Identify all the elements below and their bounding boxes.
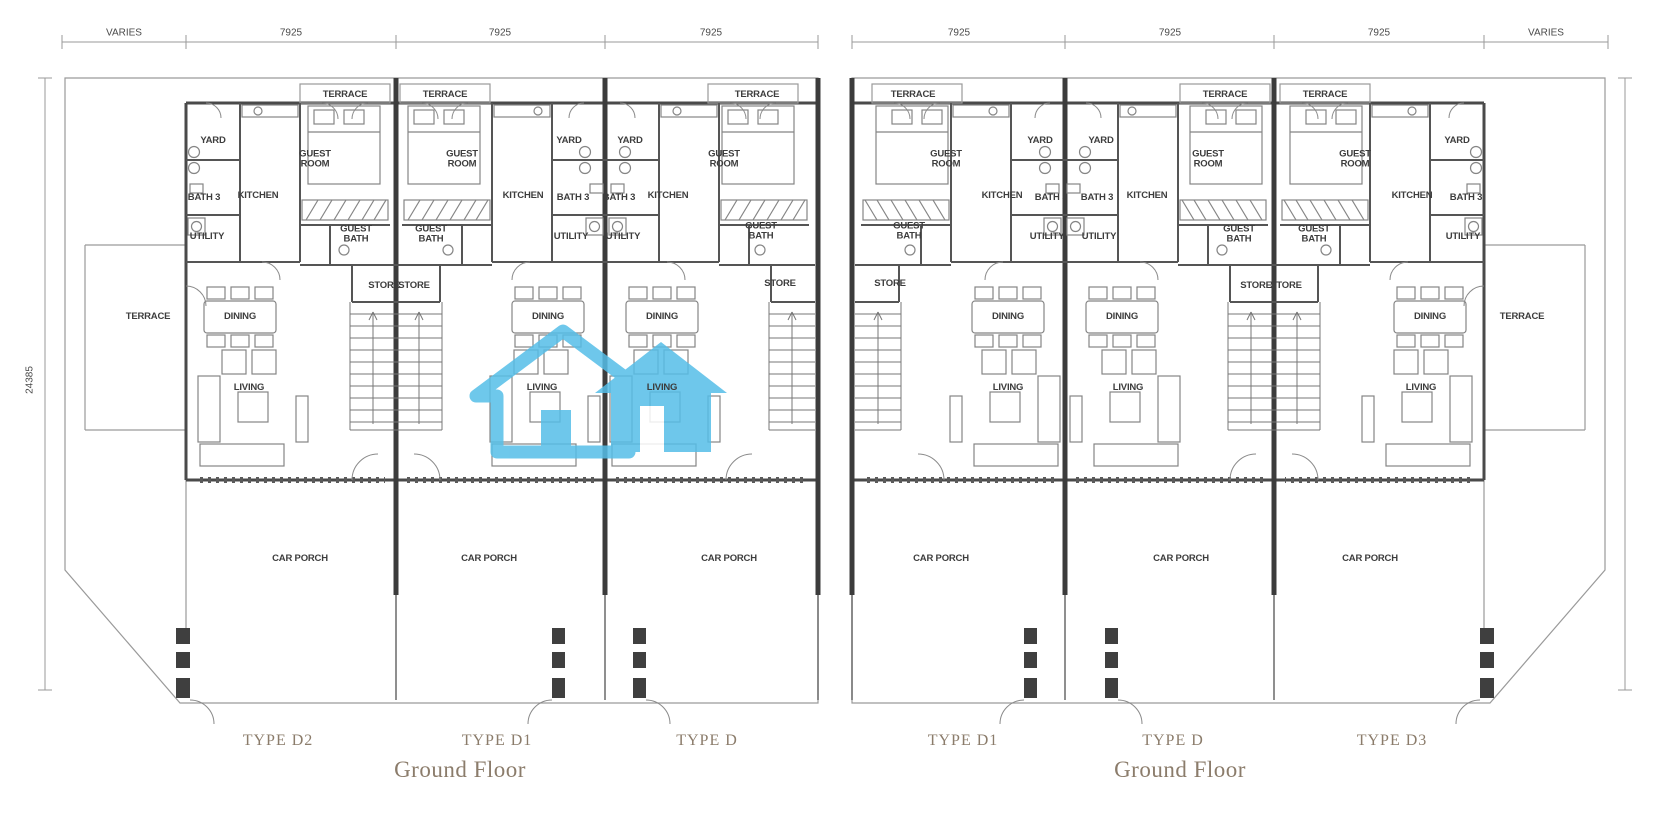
label-guest-room: GUEST ROOM bbox=[439, 150, 485, 171]
label-terrace: TERRACE bbox=[1203, 90, 1248, 100]
label-terrace: TERRACE bbox=[423, 90, 468, 100]
label-store: STORE bbox=[368, 281, 400, 291]
floor-title-right: Ground Floor bbox=[1114, 757, 1246, 783]
label-guest-bath: GUEST BATH bbox=[1216, 225, 1262, 246]
label-living: LIVING bbox=[1113, 383, 1143, 393]
label-bath3: BATH 3 bbox=[1450, 193, 1482, 203]
label-terrace: TERRACE bbox=[323, 90, 368, 100]
label-yard: YARD bbox=[617, 136, 642, 146]
floor-plan-drawing bbox=[0, 0, 1670, 814]
label-living: LIVING bbox=[1406, 383, 1436, 393]
watermark-house-door bbox=[541, 410, 571, 452]
label-car-porch: CAR PORCH bbox=[701, 554, 757, 564]
label-kitchen: KITCHEN bbox=[982, 191, 1023, 201]
label-dining: DINING bbox=[532, 312, 564, 322]
label-yard: YARD bbox=[1027, 136, 1052, 146]
label-guest-bath: GUEST BATH bbox=[333, 225, 379, 246]
label-guest-bath: GUEST BATH bbox=[408, 225, 454, 246]
label-dining: DINING bbox=[224, 312, 256, 322]
type-label-d1: TYPE D1 bbox=[462, 732, 533, 750]
dim-label-varies-left: VARIES bbox=[106, 28, 142, 39]
label-bath3: BATH 3 bbox=[1081, 193, 1113, 203]
dim-label-varies-right: VARIES bbox=[1528, 28, 1564, 39]
label-guest-bath: GUEST BATH bbox=[886, 222, 932, 243]
label-living: LIVING bbox=[527, 383, 557, 393]
type-label-d-right: TYPE D bbox=[1142, 732, 1204, 750]
label-bath3: BATH 3 bbox=[1035, 193, 1067, 203]
label-yard: YARD bbox=[200, 136, 225, 146]
label-yard: YARD bbox=[1088, 136, 1113, 146]
label-guest-room: GUEST ROOM bbox=[292, 150, 338, 171]
dim-label-bay: 7925 bbox=[280, 28, 302, 39]
dim-label-bay: 7925 bbox=[948, 28, 970, 39]
label-car-porch: CAR PORCH bbox=[913, 554, 969, 564]
right-block-plan bbox=[852, 35, 1632, 724]
label-guest-room: GUEST ROOM bbox=[1185, 150, 1231, 171]
type-label-d1-right: TYPE D1 bbox=[928, 732, 999, 750]
label-bath3: BATH 3 bbox=[188, 193, 220, 203]
label-terrace: TERRACE bbox=[735, 90, 780, 100]
label-utility: UTILITY bbox=[606, 232, 641, 242]
label-kitchen: KITCHEN bbox=[1127, 191, 1168, 201]
label-guest-bath: GUEST BATH bbox=[738, 222, 784, 243]
label-utility: UTILITY bbox=[1446, 232, 1481, 242]
label-kitchen: KITCHEN bbox=[503, 191, 544, 201]
label-car-porch: CAR PORCH bbox=[1342, 554, 1398, 564]
type-label-d3: TYPE D3 bbox=[1357, 732, 1428, 750]
label-guest-bath: GUEST BATH bbox=[1291, 225, 1337, 246]
label-store: STORE bbox=[1240, 281, 1272, 291]
label-store: STORE bbox=[398, 281, 430, 291]
label-dining: DINING bbox=[992, 312, 1024, 322]
label-living: LIVING bbox=[647, 383, 677, 393]
dim-label-bay: 7925 bbox=[1159, 28, 1181, 39]
label-guest-room: GUEST ROOM bbox=[923, 150, 969, 171]
label-guest-room: GUEST ROOM bbox=[701, 150, 747, 171]
label-kitchen: KITCHEN bbox=[238, 191, 279, 201]
floor-plan-page: VARIES 7925 7925 7925 24385 TERRACE YARD… bbox=[0, 0, 1670, 814]
watermark-house-door-white bbox=[640, 406, 664, 452]
label-store: STORE bbox=[764, 279, 796, 289]
dim-label-bay: 7925 bbox=[1368, 28, 1390, 39]
label-bath3: BATH 3 bbox=[603, 193, 635, 203]
label-car-porch: CAR PORCH bbox=[272, 554, 328, 564]
label-store: STORE bbox=[1270, 281, 1302, 291]
label-utility: UTILITY bbox=[554, 232, 589, 242]
label-car-porch: CAR PORCH bbox=[1153, 554, 1209, 564]
label-side-terrace: TERRACE bbox=[1500, 312, 1545, 322]
label-dining: DINING bbox=[646, 312, 678, 322]
label-yard: YARD bbox=[556, 136, 581, 146]
label-dining: DINING bbox=[1106, 312, 1138, 322]
label-kitchen: KITCHEN bbox=[648, 191, 689, 201]
dim-label-depth: 24385 bbox=[25, 366, 36, 394]
label-terrace: TERRACE bbox=[1303, 90, 1348, 100]
label-guest-room: GUEST ROOM bbox=[1332, 150, 1378, 171]
label-utility: UTILITY bbox=[190, 232, 225, 242]
watermark-logo bbox=[476, 331, 727, 452]
label-store: STORE bbox=[874, 279, 906, 289]
dim-label-bay: 7925 bbox=[489, 28, 511, 39]
label-yard: YARD bbox=[1444, 136, 1469, 146]
label-bath3: BATH 3 bbox=[557, 193, 589, 203]
label-terrace: TERRACE bbox=[891, 90, 936, 100]
type-label-d: TYPE D bbox=[676, 732, 738, 750]
label-utility: UTILITY bbox=[1030, 232, 1065, 242]
label-side-terrace: TERRACE bbox=[126, 312, 171, 322]
floor-title-left: Ground Floor bbox=[394, 757, 526, 783]
label-living: LIVING bbox=[993, 383, 1023, 393]
dim-label-bay: 7925 bbox=[700, 28, 722, 39]
label-living: LIVING bbox=[234, 383, 264, 393]
label-dining: DINING bbox=[1414, 312, 1446, 322]
label-kitchen: KITCHEN bbox=[1392, 191, 1433, 201]
label-utility: UTILITY bbox=[1082, 232, 1117, 242]
type-label-d2: TYPE D2 bbox=[243, 732, 314, 750]
label-car-porch: CAR PORCH bbox=[461, 554, 517, 564]
